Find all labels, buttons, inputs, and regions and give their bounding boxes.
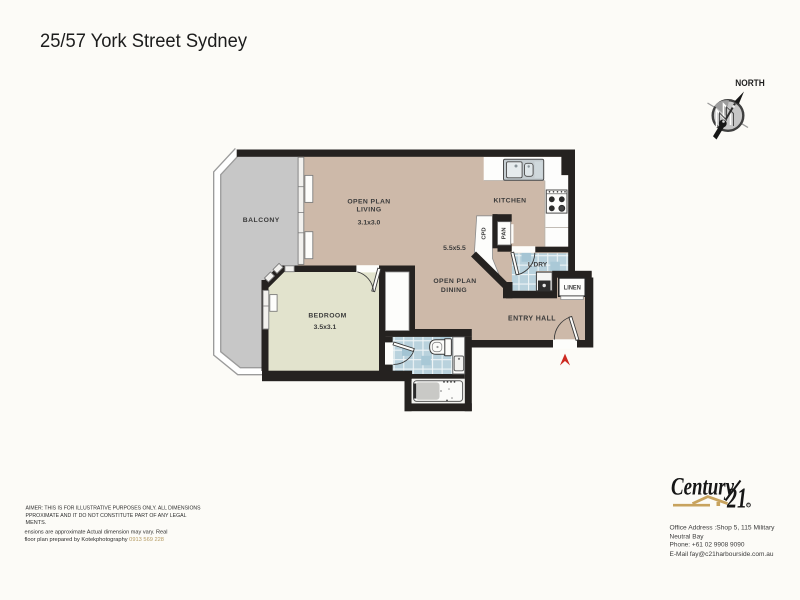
svg-text:Century: Century (671, 474, 735, 501)
svg-text:R: R (747, 503, 750, 508)
svg-text:KITCHEN: KITCHEN (493, 198, 526, 205)
svg-text:L'DRY: L'DRY (528, 261, 548, 268)
svg-text:3.1x3.0: 3.1x3.0 (358, 220, 381, 227)
svg-text:floor plan prepared by Kotekph: floor plan prepared by Kotekphotography … (25, 537, 164, 543)
svg-text:ensions are approximate Actual: ensions are approximate Actual dimension… (25, 530, 168, 536)
svg-text:NORTH: NORTH (735, 78, 765, 88)
svg-text:PPROXIMATE AND IT DO NOT CONST: PPROXIMATE AND IT DO NOT CONSTITUTE PART… (26, 513, 187, 519)
svg-text:21: 21 (726, 483, 747, 515)
svg-text:5.5x5.5: 5.5x5.5 (443, 245, 466, 252)
svg-text:25/57 York Street Sydney: 25/57 York Street Sydney (40, 31, 247, 52)
svg-text:Office Address :Shop 5, 115 Mi: Office Address :Shop 5, 115 Military (670, 525, 776, 532)
svg-text:ENTRY HALL: ENTRY HALL (508, 316, 556, 323)
svg-text:BALCONY: BALCONY (243, 217, 280, 224)
svg-text:Phone: +61 02 9908 9090: Phone: +61 02 9908 9090 (670, 542, 745, 549)
svg-text:LINEN: LINEN (564, 284, 581, 291)
svg-text:3.5x3.1: 3.5x3.1 (314, 324, 337, 331)
svg-text:OPEN PLAN: OPEN PLAN (347, 199, 390, 206)
svg-text:OPEN PLAN: OPEN PLAN (433, 278, 476, 285)
svg-text:CPD: CPD (482, 227, 488, 239)
svg-text:Neutral Bay: Neutral Bay (670, 533, 705, 540)
svg-text:DINING: DINING (441, 287, 467, 294)
svg-text:PAN: PAN (501, 227, 507, 239)
svg-text:BEDROOM: BEDROOM (308, 312, 346, 319)
svg-text:LIVING: LIVING (356, 207, 381, 214)
svg-text:AIMER: THIS IS FOR ILLUSTRATIV: AIMER: THIS IS FOR ILLUSTRATIVE PURPOSES… (26, 506, 201, 512)
svg-text:MENTS.: MENTS. (26, 520, 47, 526)
svg-text:E-Mail fay@c21harbourside.com: E-Mail fay@c21harbourside.com.au (670, 551, 774, 558)
